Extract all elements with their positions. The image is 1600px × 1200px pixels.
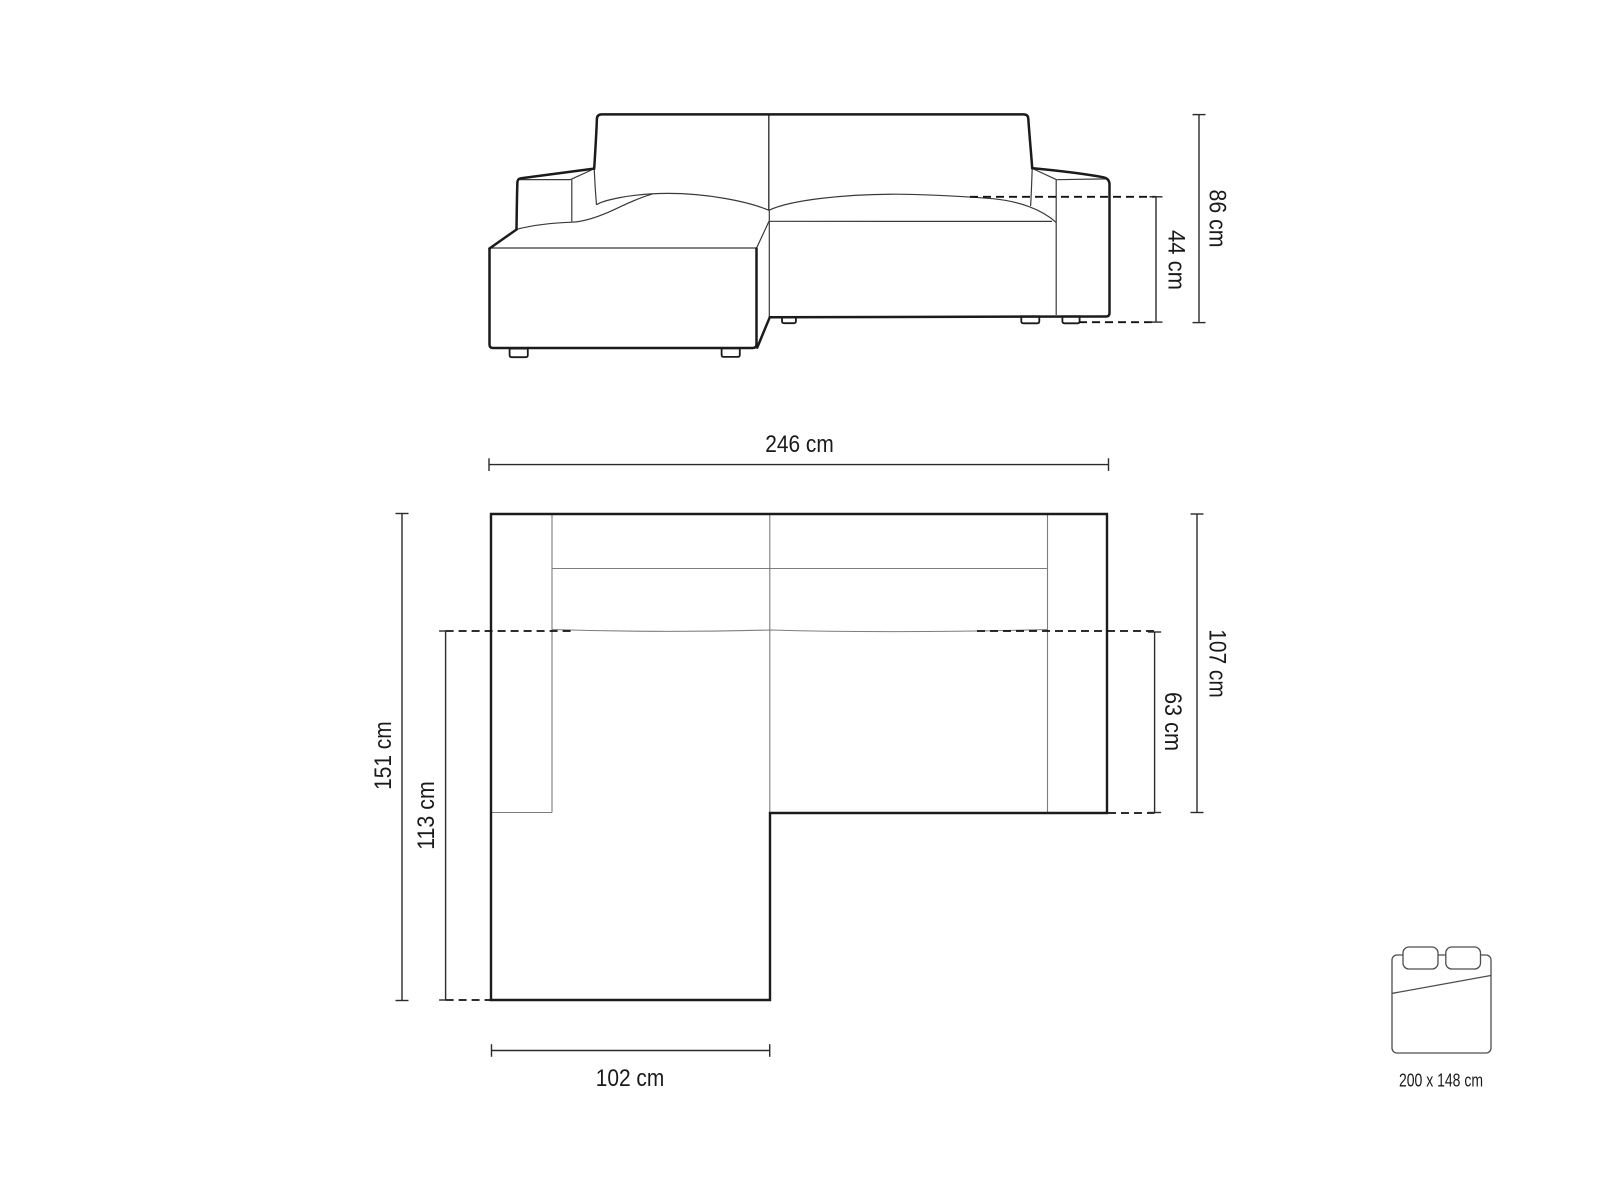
svg-text:246 cm: 246 cm: [765, 431, 834, 458]
svg-text:102 cm: 102 cm: [596, 1065, 665, 1092]
svg-text:44 cm: 44 cm: [1162, 230, 1189, 290]
svg-text:200 x 148 cm: 200 x 148 cm: [1399, 1070, 1483, 1091]
svg-text:107 cm: 107 cm: [1204, 629, 1231, 698]
svg-text:113 cm: 113 cm: [413, 781, 440, 850]
svg-text:86 cm: 86 cm: [1204, 190, 1231, 248]
svg-text:151 cm: 151 cm: [370, 721, 397, 790]
svg-text:63 cm: 63 cm: [1159, 692, 1186, 751]
